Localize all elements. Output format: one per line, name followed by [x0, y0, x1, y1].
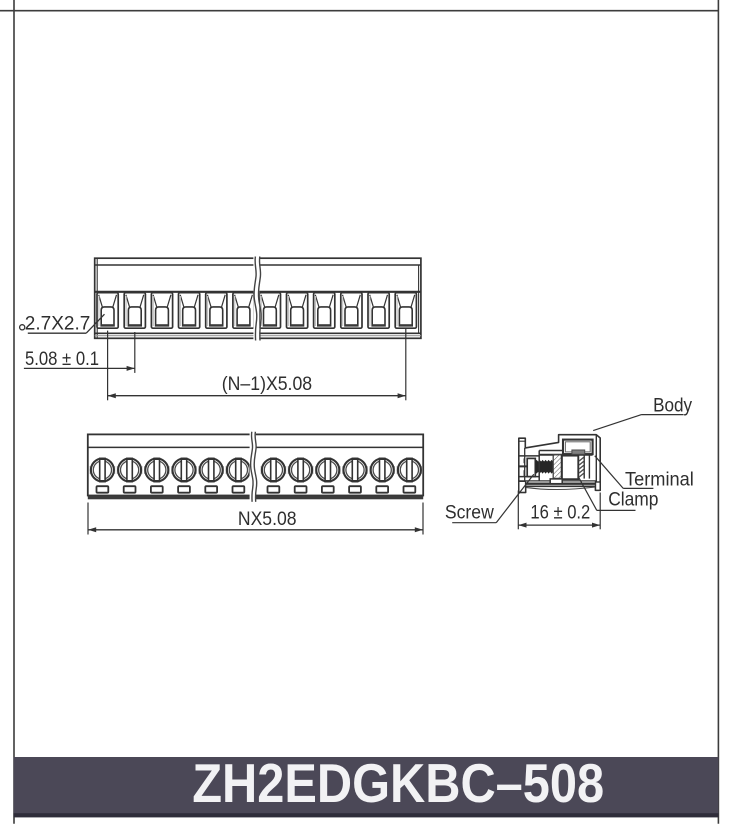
- svg-text:Terminal: Terminal: [625, 468, 694, 490]
- svg-text:Clamp: Clamp: [608, 488, 658, 510]
- svg-text:(N–1)X5.08: (N–1)X5.08: [222, 373, 312, 395]
- svg-text:5.08 ± 0.1: 5.08 ± 0.1: [25, 348, 99, 370]
- svg-text:Body: Body: [653, 395, 692, 417]
- svg-text:NX5.08: NX5.08: [238, 508, 297, 530]
- svg-text:ZH2EDGKBC–508: ZH2EDGKBC–508: [192, 752, 604, 814]
- svg-text:16 ± 0.2: 16 ± 0.2: [530, 502, 590, 524]
- svg-text:Screw: Screw: [445, 502, 495, 524]
- svg-text:2.7X2.7: 2.7X2.7: [25, 313, 91, 335]
